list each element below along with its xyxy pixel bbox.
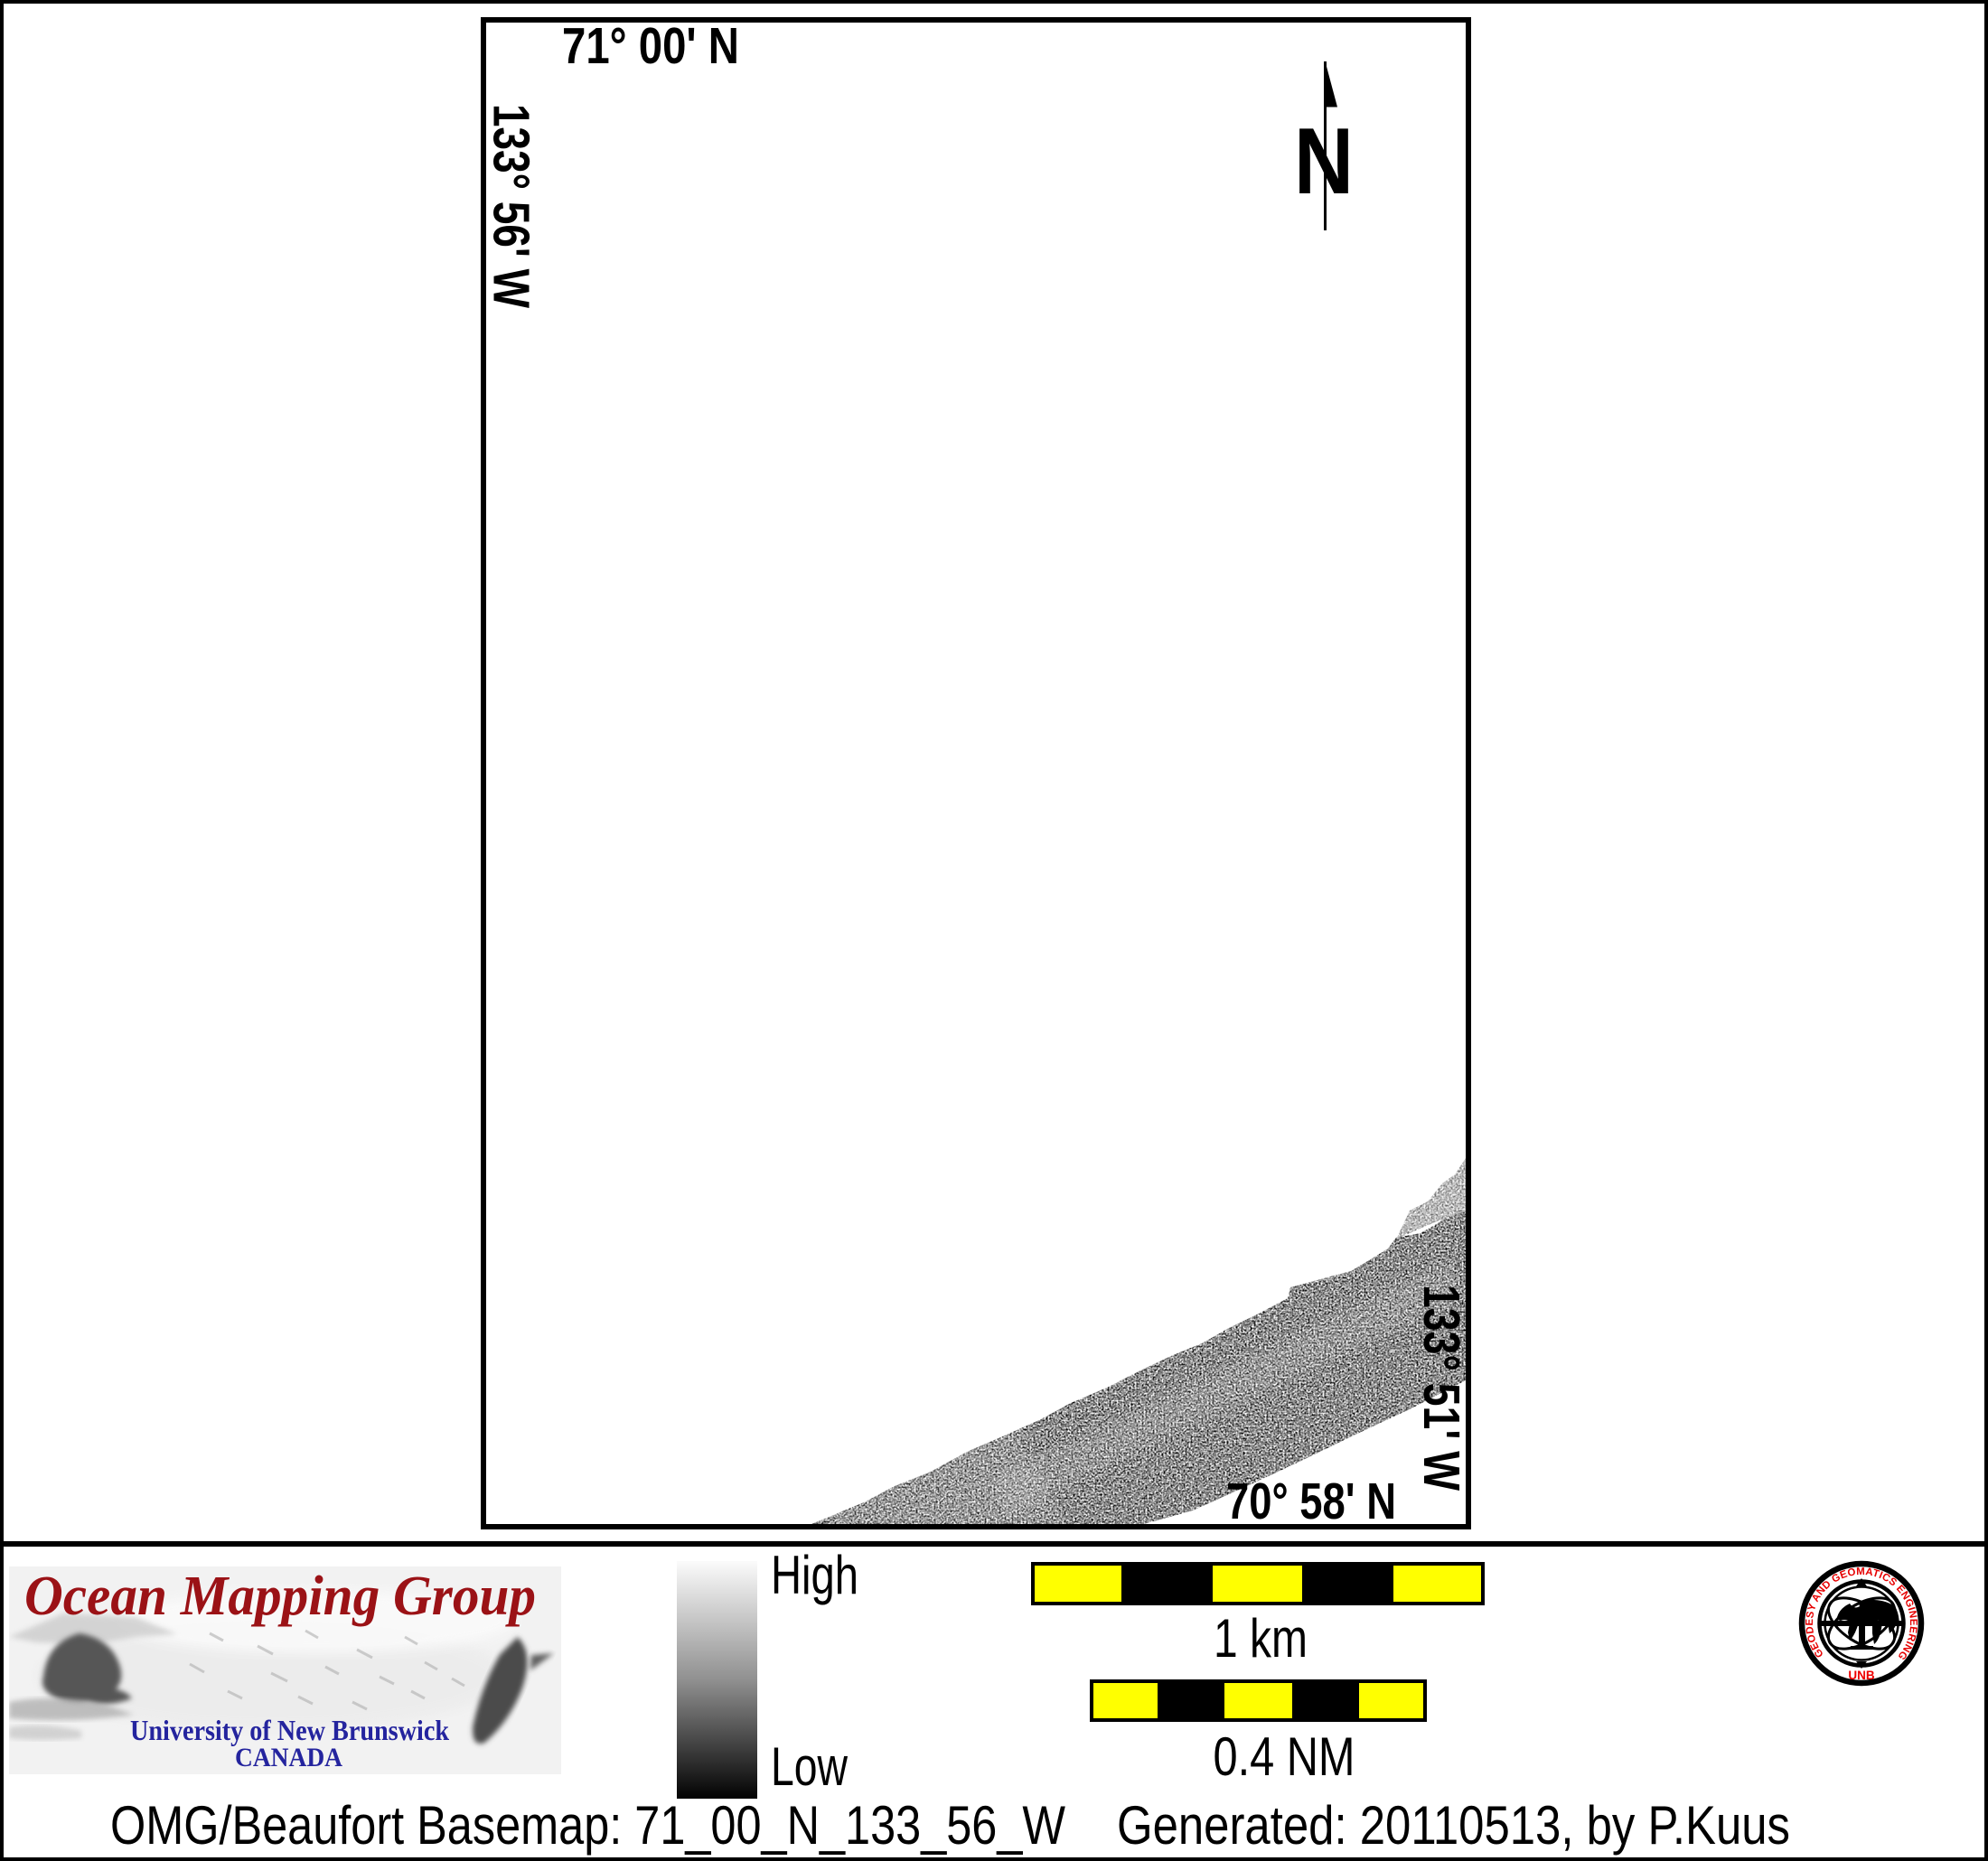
svg-text:University of New Brunswick: University of New Brunswick bbox=[130, 1714, 449, 1746]
svg-text:0.4 NM: 0.4 NM bbox=[1214, 1726, 1355, 1787]
svg-text:Low: Low bbox=[771, 1736, 849, 1797]
svg-text:Generated: 20110513, by P.Kuus: Generated: 20110513, by P.Kuus bbox=[1117, 1795, 1790, 1856]
svg-text:OMG/Beaufort Basemap: 71_00_N_: OMG/Beaufort Basemap: 71_00_N_133_56_W bbox=[110, 1795, 1065, 1856]
svg-text:133° 51' W: 133° 51' W bbox=[1412, 1285, 1470, 1491]
svg-text:1 km: 1 km bbox=[1214, 1608, 1308, 1669]
svg-text:CANADA: CANADA bbox=[235, 1743, 342, 1772]
svg-text:Ocean Mapping Group: Ocean Mapping Group bbox=[24, 1566, 536, 1627]
svg-text:71° 00' N: 71° 00' N bbox=[562, 17, 739, 75]
svg-text:70° 58' N: 70° 58' N bbox=[1226, 1473, 1396, 1530]
svg-text:High: High bbox=[771, 1545, 858, 1605]
svg-text:133° 56' W: 133° 56' W bbox=[483, 104, 540, 308]
svg-text:N: N bbox=[1294, 109, 1354, 214]
svg-text:UNB: UNB bbox=[1848, 1669, 1874, 1682]
